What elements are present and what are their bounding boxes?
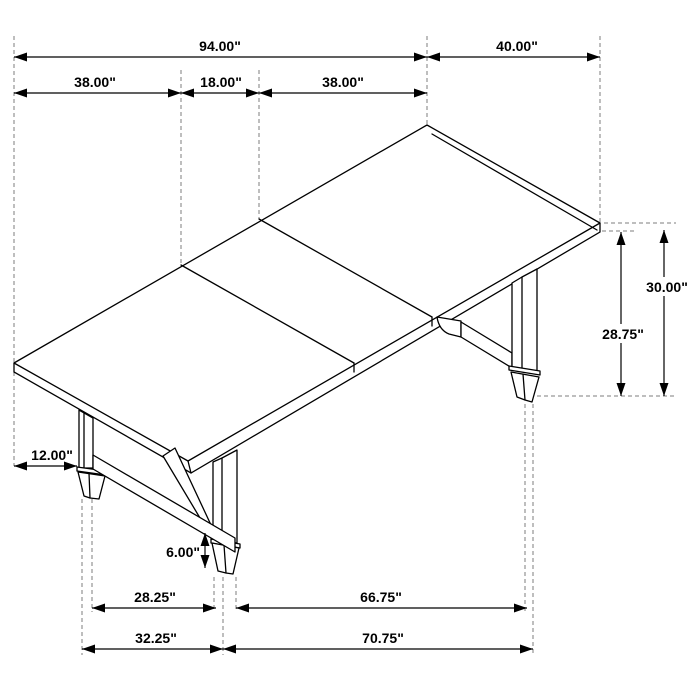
right-corbel	[437, 317, 461, 337]
dim-table-height: 30.00"	[646, 279, 688, 295]
dim-leaf-right: 38.00"	[322, 74, 364, 90]
dim-end-overhang: 12.00"	[31, 447, 73, 463]
front-right-leg	[509, 269, 540, 402]
dim-leaf-center: 18.00"	[200, 74, 242, 90]
rear-left-foot	[78, 472, 105, 499]
right-cross-beam	[461, 322, 512, 368]
dim-foot-span-outer: 32.25"	[135, 630, 177, 646]
dim-leaf-left: 38.00"	[74, 74, 116, 90]
dim-underside-height: 28.75"	[602, 326, 644, 342]
dim-base-span-long: 70.75"	[362, 630, 404, 646]
dim-top-width: 40.00"	[496, 38, 538, 54]
front-left-leg	[211, 450, 240, 574]
drawing-canvas: 94.00" 40.00" 38.00" 18.00" 38.00" 30.00…	[0, 0, 700, 700]
dim-stretcher-clearance: 6.00"	[166, 544, 200, 560]
dim-top-length-total: 94.00"	[199, 38, 241, 54]
dim-foot-gap-long: 66.75"	[360, 589, 402, 605]
table-drawing	[14, 125, 600, 574]
table-dimension-diagram: 94.00" 40.00" 38.00" 18.00" 38.00" 30.00…	[0, 0, 700, 700]
dim-foot-span-inner: 28.25"	[134, 589, 176, 605]
rear-left-leg	[77, 410, 106, 499]
